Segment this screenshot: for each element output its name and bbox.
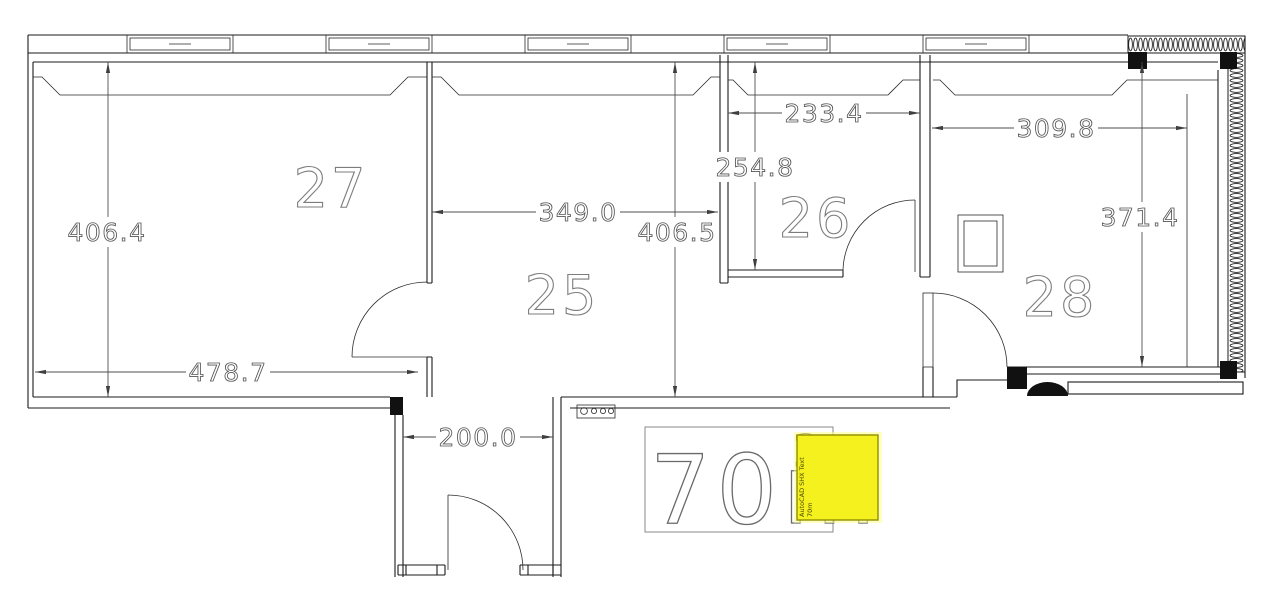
dimension-entry-width: 200.0 <box>403 422 553 452</box>
cooktop-symbol <box>577 405 615 418</box>
dimension-room27-width: 478.7 <box>35 357 418 387</box>
dim-label-371-4: 371.4 <box>1100 203 1179 232</box>
room-label-26: 26 <box>779 187 854 250</box>
dimension-room27-height: 406.4 <box>67 62 146 397</box>
window-unit-3 <box>525 35 631 53</box>
shx-text-highlight: AutoCAD SHX Text 70m <box>794 432 882 523</box>
highlight-tool-label: AutoCAD SHX Text <box>798 457 806 517</box>
dim-label-233-4: 233.4 <box>784 99 863 128</box>
dim-label-406-4: 406.4 <box>67 218 146 247</box>
room-label-27: 27 <box>294 157 369 220</box>
door-entry-room <box>448 495 523 570</box>
dimension-room26-width: 233.4 <box>728 98 920 128</box>
dim-label-309-8: 309.8 <box>1016 114 1095 143</box>
window-unit-5 <box>923 35 1029 53</box>
floor-plan-canvas: 406.4 478.7 349.0 406.5 233.4 254.8 <box>0 0 1280 611</box>
door-room27 <box>352 282 427 357</box>
dim-label-349-0: 349.0 <box>538 198 617 227</box>
dim-label-254-8: 254.8 <box>715 153 794 182</box>
room-label-28: 28 <box>1023 266 1098 329</box>
soffit-lines <box>33 77 1218 95</box>
dim-label-406-5: 406.5 <box>637 218 716 247</box>
room-label-25: 25 <box>525 264 600 327</box>
dimension-room28-height: 371.4 <box>1098 62 1182 367</box>
dimension-room28-width: 309.8 <box>932 113 1187 143</box>
balcony-door-threshold <box>1027 382 1068 396</box>
window-unit-2 <box>326 35 432 53</box>
window-unit-4 <box>724 35 830 53</box>
shaft-box <box>958 215 1003 272</box>
door-room28 <box>923 293 1007 367</box>
dimensions: 406.4 478.7 349.0 406.5 233.4 254.8 <box>35 62 1187 452</box>
door-room26 <box>843 200 915 272</box>
dimension-room25-height: 406.5 <box>635 62 719 397</box>
floor-plan-drawing: 406.4 478.7 349.0 406.5 233.4 254.8 <box>0 0 1280 611</box>
window-unit-1 <box>127 35 233 53</box>
window-band <box>127 35 1029 53</box>
dim-label-200-0: 200.0 <box>438 423 517 452</box>
highlight-value-label: 70m <box>806 502 814 517</box>
dim-label-478-7: 478.7 <box>188 358 267 387</box>
